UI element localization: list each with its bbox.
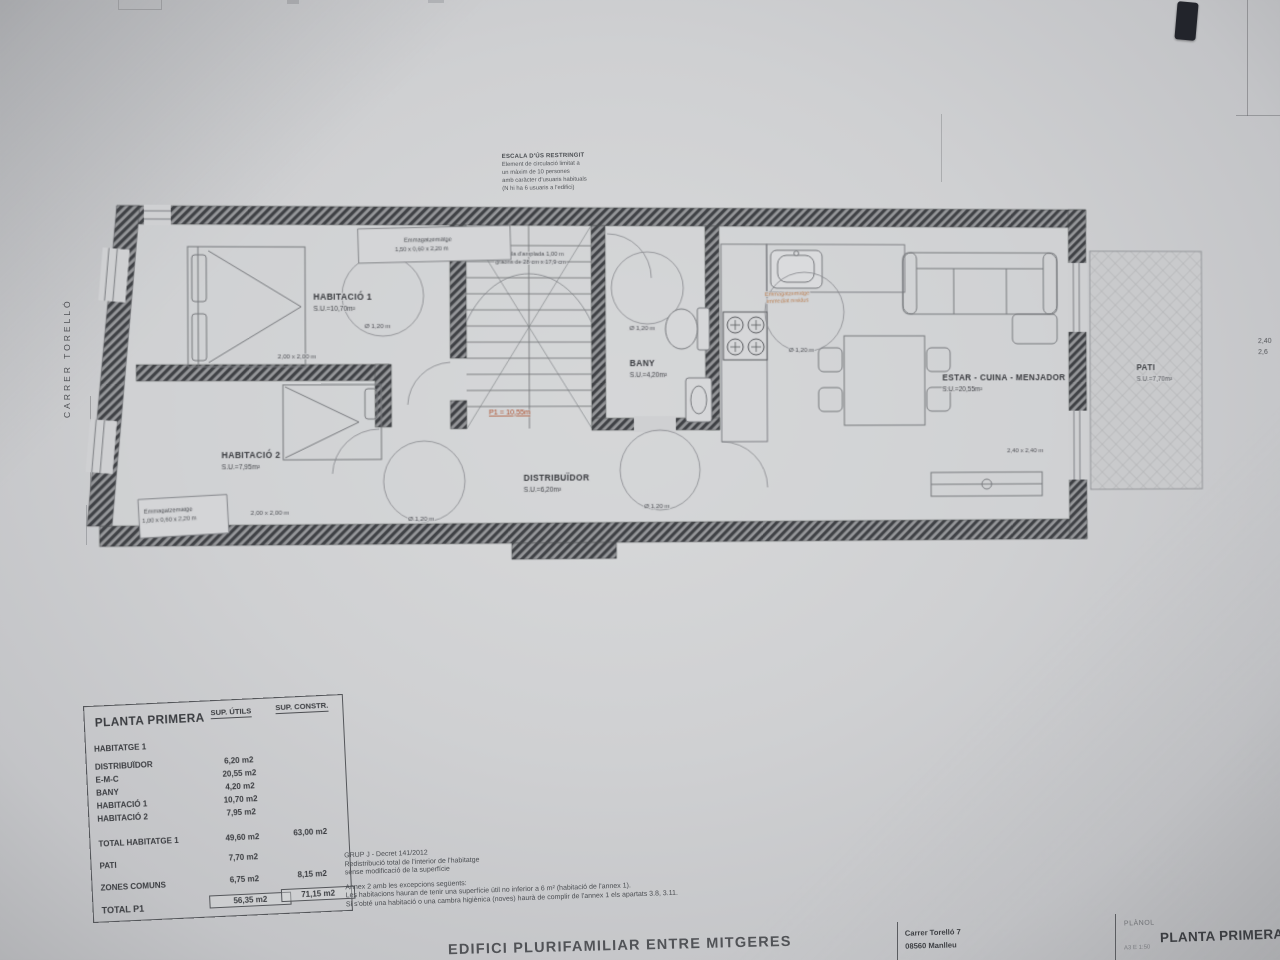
column-header-constr: SUP. CONSTR. — [275, 701, 328, 714]
table-comuns-constr: 8,15 m2 — [280, 868, 344, 880]
room-area-distribuidor: S.U.=6,20m² — [524, 487, 562, 494]
table-row-value: 20,55 m2 — [203, 767, 275, 779]
table-comuns-utils: 6,75 m2 — [208, 873, 280, 885]
storage-top-line1: Emmagatzematge — [404, 237, 452, 244]
stove-icon — [723, 312, 767, 360]
room-area-hab2: S.U.=7,95m² — [222, 464, 261, 471]
titleblock-divider — [897, 922, 898, 960]
stair-height-label: P1 = 10,55m — [489, 407, 530, 416]
table-row-value: 4,20 m2 — [204, 780, 276, 792]
table-total-constr: 71,15 m2 — [281, 886, 356, 902]
table-title: PLANTA PRIMERA — [94, 711, 204, 730]
titleblock-address: Carrer Torelló 7 08560 Manlleu — [905, 925, 962, 953]
edge-dim: 2,40 — [1258, 336, 1272, 347]
storage-top: Emmagatzematge 1,50 x 0,60 x 2,20 m — [358, 225, 511, 263]
areas-table: PLANTA PRIMERA SUP. ÚTILS SUP. CONSTR. H… — [83, 694, 353, 923]
table-total-label: TOTAL P1 — [101, 904, 144, 916]
table-total-hab-label: TOTAL HABITATGE 1 — [98, 836, 178, 849]
table-row-label: HABITACIÓ 2 — [97, 812, 148, 823]
table-total-hab-constr: 63,00 m2 — [278, 826, 342, 838]
diameter-label: Ø 1,20 m — [629, 325, 655, 332]
table-row-label: DISTRIBUÏDOR — [95, 760, 153, 772]
table-total-utils: 56,35 m2 — [209, 892, 292, 909]
stair-note-line2: graons de 28 cm x 17,9 cm — [495, 260, 566, 266]
table-row-value: 6,20 m2 — [203, 754, 275, 766]
table-row-value: 7,95 m2 — [205, 806, 277, 818]
column-header-utils: SUP. ÚTILS — [210, 706, 251, 719]
room-area-bany: S.U.=4,20m² — [630, 372, 668, 379]
bed1-dim-label: 2,00 x 2,00 m — [278, 353, 317, 360]
photographed-floorplan-sheet: { "sheet": { "street_label": "CARRER TOR… — [0, 0, 1280, 960]
table-total-hab-utils: 49,60 m2 — [206, 831, 278, 843]
table-row-label: BANY — [96, 788, 119, 798]
titleblock-divider — [1115, 914, 1116, 960]
bed2-dim-label: 2,00 x 2,00 m — [251, 510, 290, 517]
edge-dim: 2,6 — [1258, 347, 1272, 358]
table-pati-utils: 7,70 m2 — [207, 851, 279, 863]
storage-bottom: Emmagatzematge 1,00 x 0,60 x 2,20 m — [138, 494, 229, 538]
room-label-pati: PATI — [1136, 362, 1155, 372]
sink-icon — [686, 378, 712, 422]
titleblock-scale: A3 E 1:50 — [1124, 945, 1151, 952]
table-row-value: 10,70 m2 — [204, 793, 276, 805]
table-row-label: HABITACIÓ 1 — [97, 799, 148, 810]
diameter-label: Ø 1,20 m — [408, 516, 434, 523]
address-line2: 08560 Manlleu — [905, 938, 961, 953]
room-label-estar: ESTAR - CUINA - MENJADOR — [942, 372, 1065, 382]
estar-dim-label: 2,40 x 2,40 m — [1007, 447, 1044, 454]
diameter-label: Ø 1,20 m — [365, 323, 391, 330]
room-area-hab1: S.U.=10,70m² — [313, 306, 356, 313]
table-section: HABITATGE 1 — [94, 742, 147, 753]
toilet-icon — [665, 308, 709, 350]
table-row-label: E-M-C — [95, 775, 119, 785]
room-label-bany: BANY — [630, 358, 655, 368]
patio: PATI S.U.=7,70m² — [1090, 251, 1203, 489]
table-comuns-label: ZONES COMUNS — [100, 881, 166, 893]
room-area-estar: S.U.=20,55m² — [942, 386, 983, 393]
titleblock-planol-label: PLÀNOL — [1124, 919, 1155, 927]
storage-top-line2: 1,50 x 0,60 x 2,20 m — [395, 246, 449, 253]
room-label-hab1: HABITACIÓ 1 — [313, 291, 372, 302]
edge-dimensions: 2,40 2,6 — [1258, 336, 1272, 358]
room-label-distribuidor: DISTRIBUÏDOR — [524, 473, 590, 483]
table-pati-label: PATI — [99, 861, 116, 871]
room-label-hab2: HABITACIÓ 2 — [221, 449, 280, 460]
diameter-label: Ø 1,20 m — [644, 503, 669, 510]
diameter-label: Ø 1,20 m — [789, 347, 814, 354]
room-area-pati: S.U.=7,70m² — [1137, 376, 1173, 383]
